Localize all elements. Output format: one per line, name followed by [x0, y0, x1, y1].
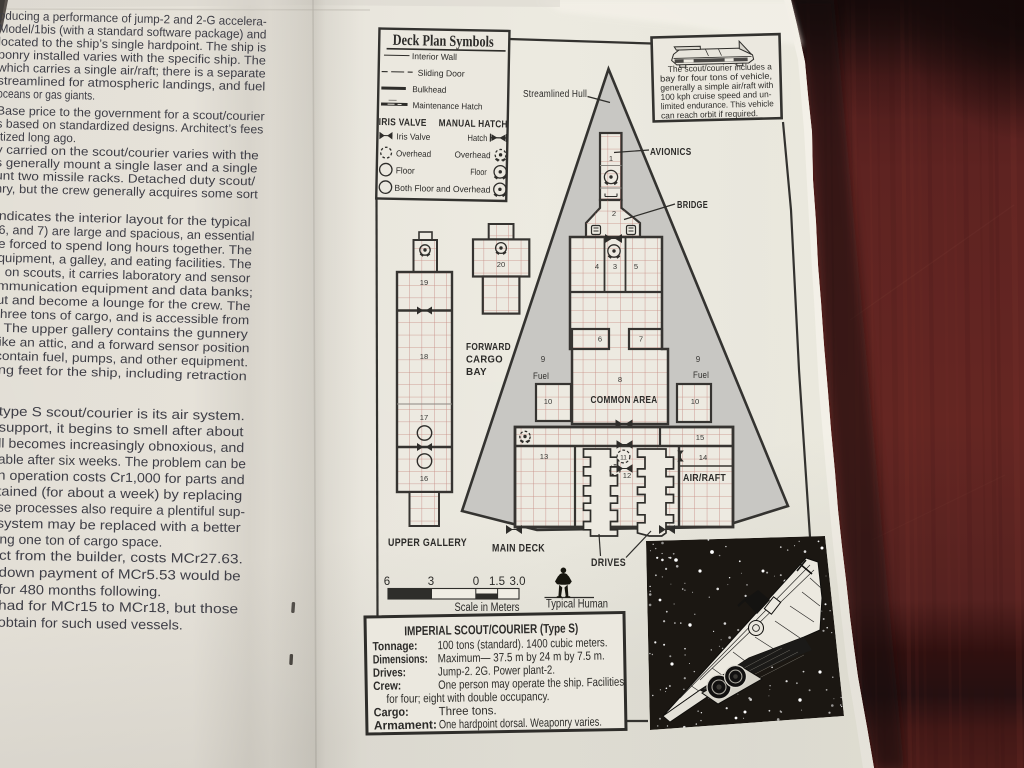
- svg-text:12: 12: [623, 471, 631, 480]
- svg-text:Interior Wall: Interior Wall: [412, 51, 457, 62]
- svg-text:16: 16: [420, 474, 428, 483]
- svg-text:Drives:: Drives:: [373, 665, 406, 680]
- svg-text:FORWARD: FORWARD: [466, 342, 511, 353]
- svg-text:17: 17: [420, 413, 428, 422]
- svg-text:One hardpoint dorsal. Weaponry: One hardpoint dorsal. Weaponry varies.: [439, 715, 602, 732]
- svg-text:Floor: Floor: [470, 167, 487, 177]
- svg-text:Both Floor and Overhead: Both Floor and Overhead: [394, 183, 490, 195]
- svg-text:UPPER GALLERY: UPPER GALLERY: [388, 537, 467, 549]
- svg-text:20: 20: [497, 260, 505, 269]
- svg-text:Bulkhead: Bulkhead: [412, 84, 446, 95]
- svg-text:14: 14: [699, 453, 707, 462]
- svg-text:Fuel: Fuel: [693, 369, 709, 380]
- svg-text:for 480 months following.: for 480 months following.: [0, 582, 161, 600]
- svg-text:3: 3: [428, 576, 434, 588]
- svg-text:Iris Valve: Iris Valve: [396, 131, 430, 142]
- svg-text:6: 6: [384, 576, 390, 588]
- svg-text:6: 6: [598, 335, 602, 344]
- svg-text:10: 10: [544, 397, 552, 406]
- svg-text:18: 18: [420, 352, 428, 361]
- svg-text:MAIN DECK: MAIN DECK: [492, 543, 545, 555]
- svg-text:Streamlined Hull: Streamlined Hull: [523, 89, 587, 100]
- svg-text:15: 15: [696, 433, 704, 442]
- svg-text:Scale in Meters: Scale in Meters: [455, 602, 520, 614]
- svg-text:1: 1: [609, 154, 613, 163]
- svg-text:0: 0: [473, 576, 479, 588]
- svg-text:oceans or gas giants.: oceans or gas giants.: [0, 86, 95, 102]
- svg-text:9: 9: [696, 355, 701, 364]
- svg-text:1.5: 1.5: [489, 576, 505, 588]
- svg-text:19: 19: [420, 278, 428, 287]
- svg-text:Typical Human: Typical Human: [546, 599, 608, 611]
- svg-text:Deck Plan Symbols: Deck Plan Symbols: [393, 32, 494, 51]
- svg-text:Overhead: Overhead: [396, 148, 431, 159]
- svg-text:8: 8: [618, 375, 622, 384]
- svg-text:Fuel: Fuel: [533, 370, 549, 381]
- svg-text:BRIDGE: BRIDGE: [677, 200, 708, 211]
- svg-text:2: 2: [612, 209, 616, 218]
- svg-text:4: 4: [595, 262, 599, 271]
- svg-text:Hatch: Hatch: [467, 133, 487, 143]
- svg-text:3.0: 3.0: [510, 576, 526, 588]
- svg-text:10: 10: [691, 397, 699, 406]
- svg-text:Floor: Floor: [396, 165, 415, 175]
- svg-text:Sliding Door: Sliding Door: [418, 68, 465, 79]
- svg-text:MANUAL HATCH: MANUAL HATCH: [439, 118, 508, 130]
- svg-text:9: 9: [541, 355, 546, 364]
- svg-text:AIR/RAFT: AIR/RAFT: [683, 472, 726, 484]
- svg-text:BAY: BAY: [466, 367, 487, 378]
- svg-text:5: 5: [634, 262, 638, 271]
- svg-text:obtain for such used vessels.: obtain for such used vessels.: [0, 615, 183, 633]
- svg-text:Overhead: Overhead: [454, 149, 490, 160]
- svg-text:COMMON AREA: COMMON AREA: [591, 394, 658, 406]
- svg-text:Armament:: Armament:: [374, 717, 437, 732]
- svg-text:3: 3: [613, 262, 617, 271]
- svg-text:ing one ton of cargo space.: ing one ton of cargo space.: [0, 531, 163, 549]
- svg-text:DRIVES: DRIVES: [591, 557, 626, 569]
- svg-text:11: 11: [620, 455, 627, 462]
- svg-text:IRIS VALVE: IRIS VALVE: [379, 117, 427, 129]
- svg-text:AVIONICS: AVIONICS: [650, 147, 692, 158]
- svg-text:Maintenance Hatch: Maintenance Hatch: [412, 100, 482, 111]
- svg-text:13: 13: [540, 452, 548, 461]
- svg-text:CARGO: CARGO: [466, 355, 503, 366]
- svg-text:7: 7: [639, 335, 643, 344]
